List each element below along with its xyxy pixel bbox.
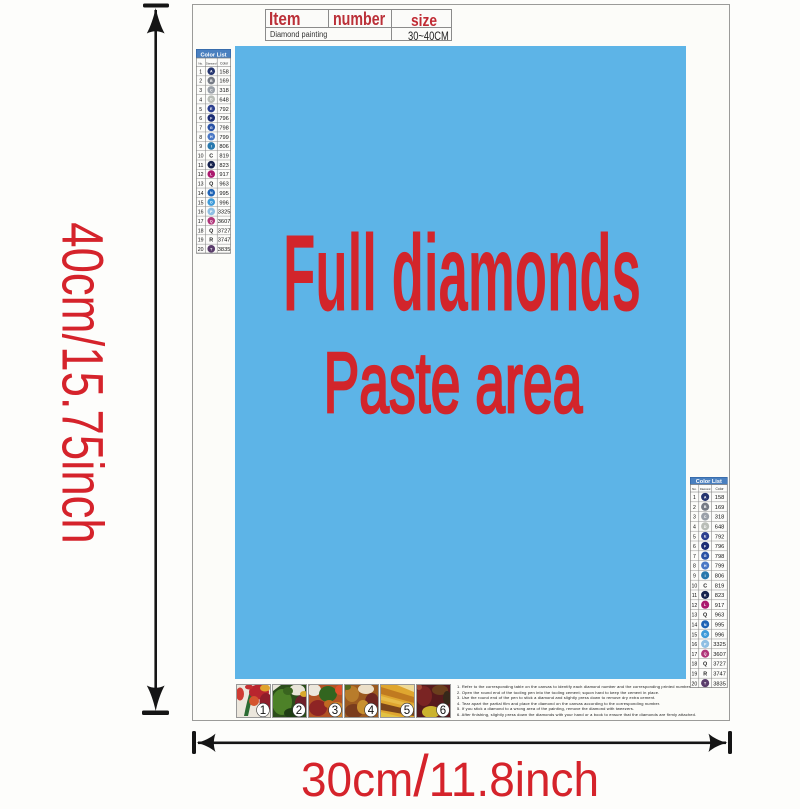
svg-text:4: 4 <box>199 97 202 103</box>
svg-text:1: 1 <box>260 705 266 717</box>
svg-text:996: 996 <box>715 632 725 638</box>
svg-text:799: 799 <box>219 135 229 141</box>
svg-text:9: 9 <box>199 144 202 150</box>
svg-text:4: 4 <box>693 525 696 531</box>
svg-text:648: 648 <box>715 525 725 531</box>
svg-text:648: 648 <box>219 97 229 103</box>
svg-text:B: B <box>210 79 213 83</box>
svg-text:18: 18 <box>692 662 698 668</box>
svg-text:Q: Q <box>210 219 213 223</box>
svg-text:796: 796 <box>715 544 725 550</box>
svg-text:5: 5 <box>693 534 696 540</box>
svg-text:798: 798 <box>715 554 725 560</box>
svg-text:C: C <box>209 154 213 160</box>
svg-text:158: 158 <box>715 495 725 501</box>
svg-text:Q: Q <box>209 228 213 234</box>
svg-text:I: I <box>705 574 706 578</box>
svg-text:G: G <box>704 554 707 558</box>
svg-text:A: A <box>210 70 213 74</box>
svg-text:3747: 3747 <box>218 238 231 244</box>
svg-text:1: 1 <box>199 69 202 75</box>
svg-text:12: 12 <box>692 603 698 609</box>
svg-text:7: 7 <box>693 554 696 560</box>
svg-text:9: 9 <box>693 574 696 580</box>
svg-text:7: 7 <box>199 125 202 131</box>
svg-text:318: 318 <box>219 88 229 94</box>
svg-text:B: B <box>704 505 707 509</box>
svg-text:D: D <box>704 525 707 529</box>
svg-text:15: 15 <box>692 632 698 638</box>
svg-text:Diamond: Diamond <box>206 62 217 66</box>
svg-text:O: O <box>704 633 707 637</box>
svg-text:Color: Color <box>716 487 725 491</box>
svg-text:No.: No. <box>198 62 203 66</box>
svg-text:963: 963 <box>715 613 725 619</box>
svg-text:3727: 3727 <box>713 662 726 668</box>
svg-text:18: 18 <box>198 228 204 234</box>
svg-text:3835: 3835 <box>713 681 726 687</box>
svg-text:2: 2 <box>296 705 302 717</box>
svg-text:819: 819 <box>219 154 229 160</box>
svg-text:798: 798 <box>219 125 229 131</box>
svg-text:8: 8 <box>693 564 696 570</box>
svg-text:806: 806 <box>715 574 725 580</box>
svg-text:13: 13 <box>692 613 698 619</box>
svg-text:14: 14 <box>198 191 204 197</box>
svg-text:318: 318 <box>715 515 725 521</box>
svg-text:H: H <box>210 135 213 139</box>
svg-text:996: 996 <box>219 200 229 206</box>
svg-text:16: 16 <box>198 210 204 216</box>
svg-text:Color List: Color List <box>200 52 226 58</box>
svg-text:5: 5 <box>199 107 202 113</box>
svg-text:3325: 3325 <box>713 642 726 648</box>
svg-text:806: 806 <box>219 144 229 150</box>
svg-text:3: 3 <box>199 88 202 94</box>
svg-text:N: N <box>210 191 213 195</box>
svg-text:3: 3 <box>693 515 696 521</box>
svg-text:792: 792 <box>715 534 725 540</box>
svg-text:Q: Q <box>703 662 707 668</box>
svg-text:995: 995 <box>715 622 725 628</box>
svg-text:1: 1 <box>693 495 696 501</box>
svg-text:D: D <box>210 98 213 102</box>
svg-text:C: C <box>210 88 213 92</box>
svg-text:11: 11 <box>198 163 203 169</box>
svg-text:Color: Color <box>220 62 229 66</box>
svg-text:K: K <box>210 163 213 167</box>
svg-text:799: 799 <box>715 564 725 570</box>
svg-text:17: 17 <box>692 652 698 658</box>
svg-text:Diamond: Diamond <box>700 487 711 491</box>
svg-text:917: 917 <box>219 172 229 178</box>
svg-text:792: 792 <box>219 107 229 113</box>
svg-text:823: 823 <box>219 163 229 169</box>
svg-text:3: 3 <box>332 705 338 717</box>
svg-text:C: C <box>704 515 707 519</box>
svg-text:20: 20 <box>692 681 698 687</box>
svg-text:20: 20 <box>198 247 204 253</box>
svg-text:H: H <box>704 564 707 568</box>
svg-text:8: 8 <box>199 135 202 141</box>
svg-text:963: 963 <box>219 182 229 188</box>
svg-text:R: R <box>703 671 707 677</box>
svg-text:169: 169 <box>219 79 229 85</box>
svg-text:995: 995 <box>219 191 229 197</box>
svg-text:16: 16 <box>692 642 698 648</box>
svg-text:11: 11 <box>692 593 697 599</box>
svg-text:N: N <box>704 623 707 627</box>
svg-text:3747: 3747 <box>713 671 726 677</box>
svg-text:796: 796 <box>219 116 229 122</box>
svg-text:10: 10 <box>692 583 698 589</box>
svg-text:A: A <box>704 495 707 499</box>
svg-text:819: 819 <box>715 583 725 589</box>
svg-text:3835: 3835 <box>218 247 231 253</box>
svg-text:14: 14 <box>692 622 698 628</box>
svg-text:6: 6 <box>693 544 696 550</box>
svg-text:6: 6 <box>440 705 446 717</box>
svg-text:G: G <box>210 126 213 130</box>
svg-text:823: 823 <box>715 593 725 599</box>
svg-text:6: 6 <box>199 116 202 122</box>
svg-text:Q: Q <box>704 652 707 656</box>
svg-text:I: I <box>211 144 212 148</box>
svg-text:Color List: Color List <box>696 479 722 485</box>
svg-text:C: C <box>703 583 707 589</box>
svg-text:R: R <box>209 238 213 244</box>
svg-text:3325: 3325 <box>218 210 231 216</box>
svg-text:3727: 3727 <box>218 228 231 234</box>
svg-text:19: 19 <box>692 671 698 677</box>
svg-text:12: 12 <box>198 172 204 178</box>
svg-text:13: 13 <box>198 182 204 188</box>
svg-text:O: O <box>210 201 213 205</box>
svg-text:2: 2 <box>199 79 202 85</box>
svg-text:19: 19 <box>198 238 204 244</box>
svg-text:Q: Q <box>703 613 707 619</box>
svg-text:2: 2 <box>693 505 696 511</box>
svg-text:10: 10 <box>198 154 204 160</box>
svg-text:5: 5 <box>404 705 410 717</box>
svg-text:No.: No. <box>692 487 697 491</box>
svg-text:158: 158 <box>219 69 229 75</box>
svg-text:K: K <box>704 593 707 597</box>
svg-text:3607: 3607 <box>218 219 231 225</box>
svg-text:169: 169 <box>715 505 725 511</box>
svg-text:17: 17 <box>198 219 204 225</box>
svg-text:15: 15 <box>198 200 204 206</box>
svg-text:Q: Q <box>209 182 213 188</box>
svg-text:917: 917 <box>715 603 725 609</box>
svg-text:4: 4 <box>368 705 375 717</box>
svg-text:3607: 3607 <box>713 652 726 658</box>
